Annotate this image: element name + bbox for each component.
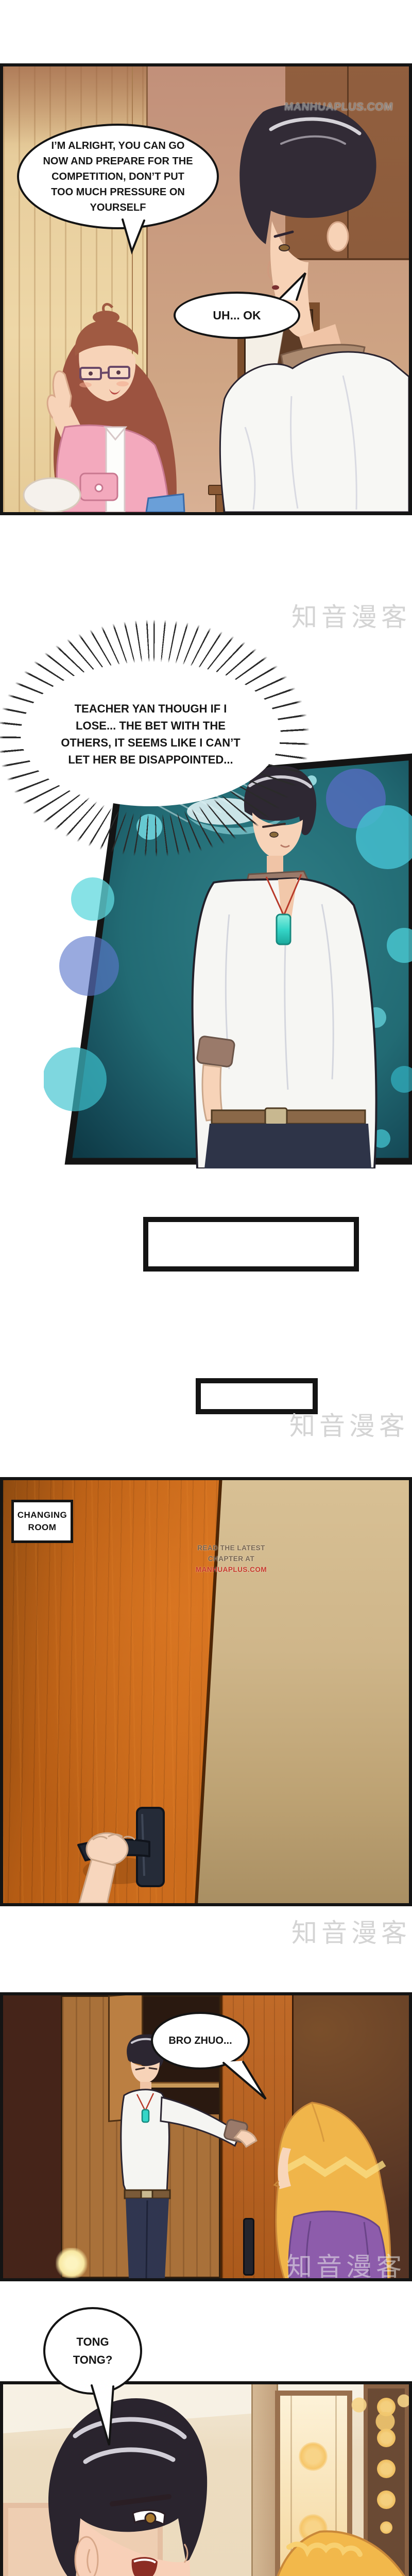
- promo-line: CHAPTER AT: [193, 1554, 270, 1565]
- speech-bubble-alright: I’M ALRIGHT, YOU CAN GO NOW AND PREPARE …: [17, 124, 219, 229]
- wall-strip: [3, 1995, 62, 2278]
- panel-1: [0, 63, 412, 515]
- speech-bubble-tong-tong: TONG TONG?: [43, 2307, 142, 2395]
- bubble-text: UH... OK: [213, 309, 261, 323]
- sign-text-line: CHANGING: [18, 1509, 67, 1521]
- promo-watermark: READ THE LATEST CHAPTER AT MANHUAPLUS.CO…: [193, 1543, 270, 1575]
- bubble-text-line: TONG?: [73, 2351, 113, 2369]
- sign-text-line: ROOM: [28, 1521, 57, 1534]
- brand-watermark-4: 知音漫客: [286, 2246, 406, 2283]
- bubble-tail: [87, 2384, 119, 2448]
- chandelier-glow: [340, 2384, 412, 2467]
- bubble-text-line: YOURSELF: [90, 200, 146, 215]
- woman-figure: [258, 2529, 412, 2576]
- brand-watermark-3: 知音漫客: [291, 1912, 411, 1950]
- bubble-tail: [220, 2059, 272, 2102]
- thought-bubble-teacher-yan: TEACHER YAN THOUGH IF I LOSE... THE BET …: [21, 662, 281, 806]
- bubble-text-line: OTHERS, IT SEEMS LIKE I CAN’T: [61, 734, 240, 751]
- promo-line: READ THE LATEST: [193, 1543, 270, 1554]
- bubble-text-line: LOSE... THE BET WITH THE: [76, 717, 226, 734]
- site-watermark: MANHUAPLUS.COM: [284, 101, 393, 113]
- promo-line: MANHUAPLUS.COM: [193, 1565, 270, 1575]
- bubble-text: BRO ZHUO...: [168, 2035, 232, 2047]
- panel-6: [0, 2381, 412, 2576]
- bubble-text-line: I’M ALRIGHT, YOU CAN GO: [51, 138, 185, 154]
- changing-room-sign: CHANGING ROOM: [11, 1500, 73, 1543]
- bubble-text-line: COMPETITION, DON’T PUT: [51, 169, 184, 184]
- woman-figure: [24, 304, 184, 512]
- bubble-tail: [119, 218, 146, 255]
- panel-4: CHANGING ROOM READ THE LATEST CHAPTER AT…: [0, 1477, 412, 1906]
- man-figure: [3, 2389, 281, 2576]
- bubble-tail: [276, 270, 308, 302]
- comic-page: MANHUAPLUS.COM I’M ALRIGHT, YOU CAN GO N…: [0, 0, 412, 2576]
- caption-box-1: [143, 1217, 359, 1272]
- bubble-text-line: TOO MUCH PRESSURE ON: [51, 184, 185, 200]
- door-handle-and-hand: [70, 1804, 178, 1903]
- brand-watermark-1: 知音漫客: [291, 597, 411, 634]
- bubble-text-line: TONG: [76, 2333, 109, 2351]
- bubble-text-line: NOW AND PREPARE FOR THE: [43, 154, 193, 169]
- brand-watermark-2: 知音漫客: [289, 1405, 409, 1443]
- bubble-text-line: TEACHER YAN THOUGH IF I: [75, 700, 227, 717]
- bubble-text-line: LET HER BE DISAPPOINTED...: [68, 751, 233, 768]
